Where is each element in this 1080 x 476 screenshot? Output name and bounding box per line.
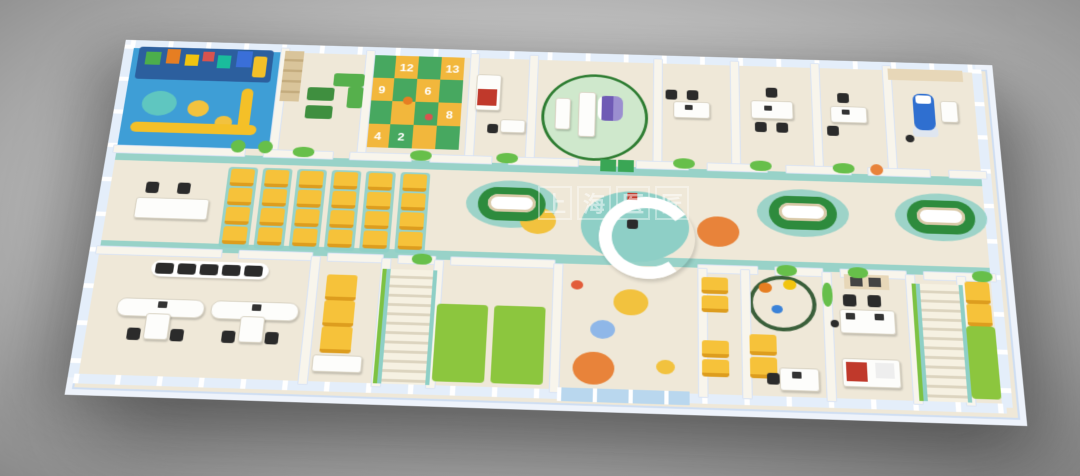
monitor	[792, 372, 802, 379]
hopscotch-number: 9	[369, 78, 394, 102]
exam-desk	[500, 119, 526, 133]
black-bench-seat	[177, 263, 197, 274]
scanner-bed	[578, 92, 597, 137]
green-sofa-l	[346, 87, 364, 109]
waiting-chair	[222, 226, 248, 245]
wall-bench-yellow	[702, 359, 729, 377]
green-sofa-l	[333, 73, 365, 87]
toy-ball-yellow	[783, 279, 797, 289]
office-chair	[264, 332, 279, 345]
black-bench-seat	[199, 264, 219, 275]
wall-decal-green	[776, 265, 797, 277]
monitor	[158, 301, 168, 308]
watermark-char: 医	[616, 186, 650, 220]
wall	[730, 61, 742, 172]
waiting-chair	[262, 189, 288, 207]
waiting-chair	[402, 174, 427, 192]
side-counter	[311, 354, 363, 373]
monitor	[764, 106, 772, 111]
waiting-chair	[224, 207, 250, 225]
ac-grille	[850, 277, 863, 287]
lobby-dot-yellow-small	[656, 360, 675, 375]
waiting-chair	[366, 192, 391, 210]
play-block-blue	[236, 51, 253, 67]
waiting-chair	[292, 228, 318, 247]
waiting-chair	[333, 172, 358, 190]
waiting-chair	[259, 208, 285, 226]
wall-decal-green	[411, 253, 432, 264]
dental-unit	[940, 101, 959, 123]
hopscotch-number: 4	[365, 124, 390, 148]
office-chair	[867, 295, 881, 307]
waiting-chair	[368, 173, 393, 191]
office-chair	[487, 124, 498, 134]
play-slide	[252, 56, 268, 77]
office-chair	[145, 182, 160, 194]
pillow	[875, 363, 895, 379]
yellow-square-mat	[966, 304, 993, 327]
bench-cushion	[779, 203, 828, 222]
nurse-desk	[133, 197, 210, 220]
dental-cabinet	[887, 69, 963, 83]
hopscotch-number: 13	[440, 57, 464, 80]
play-block-yellow	[184, 54, 199, 66]
wall-decal-green	[972, 271, 993, 283]
waiting-chair	[296, 190, 322, 208]
watermark: 上 海 医 匠	[538, 186, 689, 220]
waiting-chair	[298, 171, 324, 189]
monitor	[842, 109, 850, 114]
play-block-teal	[217, 55, 232, 68]
wall-decal-orange-ball	[870, 164, 883, 176]
wall	[652, 58, 662, 169]
yellow-bin	[322, 300, 355, 327]
waiting-chair	[229, 169, 255, 187]
hopscotch-number: 12	[394, 56, 419, 79]
wall-decal-green	[833, 163, 855, 174]
green-sofa	[307, 87, 335, 101]
monitor	[252, 304, 262, 311]
registration-counter-stem	[143, 313, 172, 340]
wall-decal-green	[496, 153, 518, 164]
bench-cushion	[487, 194, 536, 213]
waiting-chair	[264, 170, 290, 188]
waiting-chair	[397, 231, 423, 250]
waiting-chair	[294, 209, 320, 227]
imaging-cot	[554, 98, 571, 130]
waiting-chair	[327, 229, 353, 248]
toy-ball-blue	[771, 305, 783, 314]
office-chair	[221, 330, 236, 343]
wall	[948, 170, 987, 180]
office-chair	[843, 294, 857, 306]
office-chair	[177, 182, 191, 194]
office-chair	[126, 327, 141, 340]
office-chair	[767, 373, 780, 385]
wall-bench-yellow	[701, 277, 728, 294]
monitor	[874, 314, 884, 321]
scanner-arc	[597, 96, 623, 122]
watermark-char: 上	[538, 186, 572, 220]
staircase-left	[377, 269, 437, 385]
play-block-orange	[166, 49, 182, 64]
wall-decal-green	[673, 158, 695, 169]
wall-decal-green	[292, 147, 315, 158]
yellow-square-mat	[964, 282, 991, 305]
hopscotch-number: 2	[388, 124, 413, 148]
watermark-char: 海	[577, 186, 611, 220]
black-bench-seat	[221, 265, 241, 276]
waiting-chair	[364, 211, 390, 229]
black-bench-seat	[155, 263, 175, 274]
hopscotch-number: 8	[437, 102, 462, 126]
reception-chair	[627, 219, 638, 229]
render-canvas: 12 13 9 6 8 4 2	[0, 0, 1080, 476]
red-blanket	[477, 89, 497, 106]
play-block-red	[202, 52, 215, 62]
green-mat	[432, 304, 489, 383]
staircase-right	[916, 284, 973, 403]
dental-stool	[905, 135, 914, 143]
wall-bench-yellow	[702, 340, 729, 358]
wall-decal-green	[847, 267, 868, 279]
office-chair	[169, 329, 184, 342]
yellow-bin	[319, 326, 353, 353]
green-table	[600, 159, 616, 171]
lobby-dot-yellow	[613, 289, 648, 316]
green-table	[618, 160, 634, 172]
play-block-green	[144, 52, 161, 65]
consult-desk	[750, 100, 793, 119]
registration-counter-stem	[237, 316, 265, 343]
waiting-chair	[401, 193, 426, 211]
office-chair	[755, 122, 767, 132]
black-bench-seat	[244, 265, 264, 276]
waiting-chair	[331, 191, 357, 209]
dental-chair-headrest	[915, 95, 931, 104]
waiting-chair	[257, 227, 283, 246]
waiting-chair	[329, 210, 355, 228]
bench-cushion	[916, 207, 965, 226]
green-sofa	[304, 105, 332, 119]
office-chair	[766, 88, 778, 98]
monitor	[685, 105, 693, 110]
wall-decal-green	[410, 150, 432, 161]
office-chair	[666, 90, 678, 100]
hopscotch-number: 6	[415, 79, 440, 103]
green-mat	[490, 305, 545, 384]
office-chair	[827, 126, 839, 136]
equipment-stand	[831, 320, 840, 328]
watermark-char: 匠	[655, 186, 689, 220]
office-chair	[776, 122, 788, 132]
office-chair	[687, 90, 699, 100]
wall	[327, 253, 384, 264]
red-blanket	[846, 362, 868, 382]
floorplan-3d: 12 13 9 6 8 4 2	[44, 39, 1035, 422]
toy-ball-orange	[759, 282, 773, 293]
wall-bench-yellow	[702, 295, 729, 313]
waiting-chair	[362, 230, 388, 249]
kid-chair-yellow	[749, 334, 776, 356]
waiting-chair	[227, 188, 253, 206]
waiting-chair	[399, 212, 424, 230]
yellow-bin	[325, 274, 358, 301]
ac-grille	[868, 278, 881, 288]
office-chair	[837, 93, 849, 103]
monitor	[846, 313, 856, 320]
wall-decal-green	[750, 160, 772, 171]
